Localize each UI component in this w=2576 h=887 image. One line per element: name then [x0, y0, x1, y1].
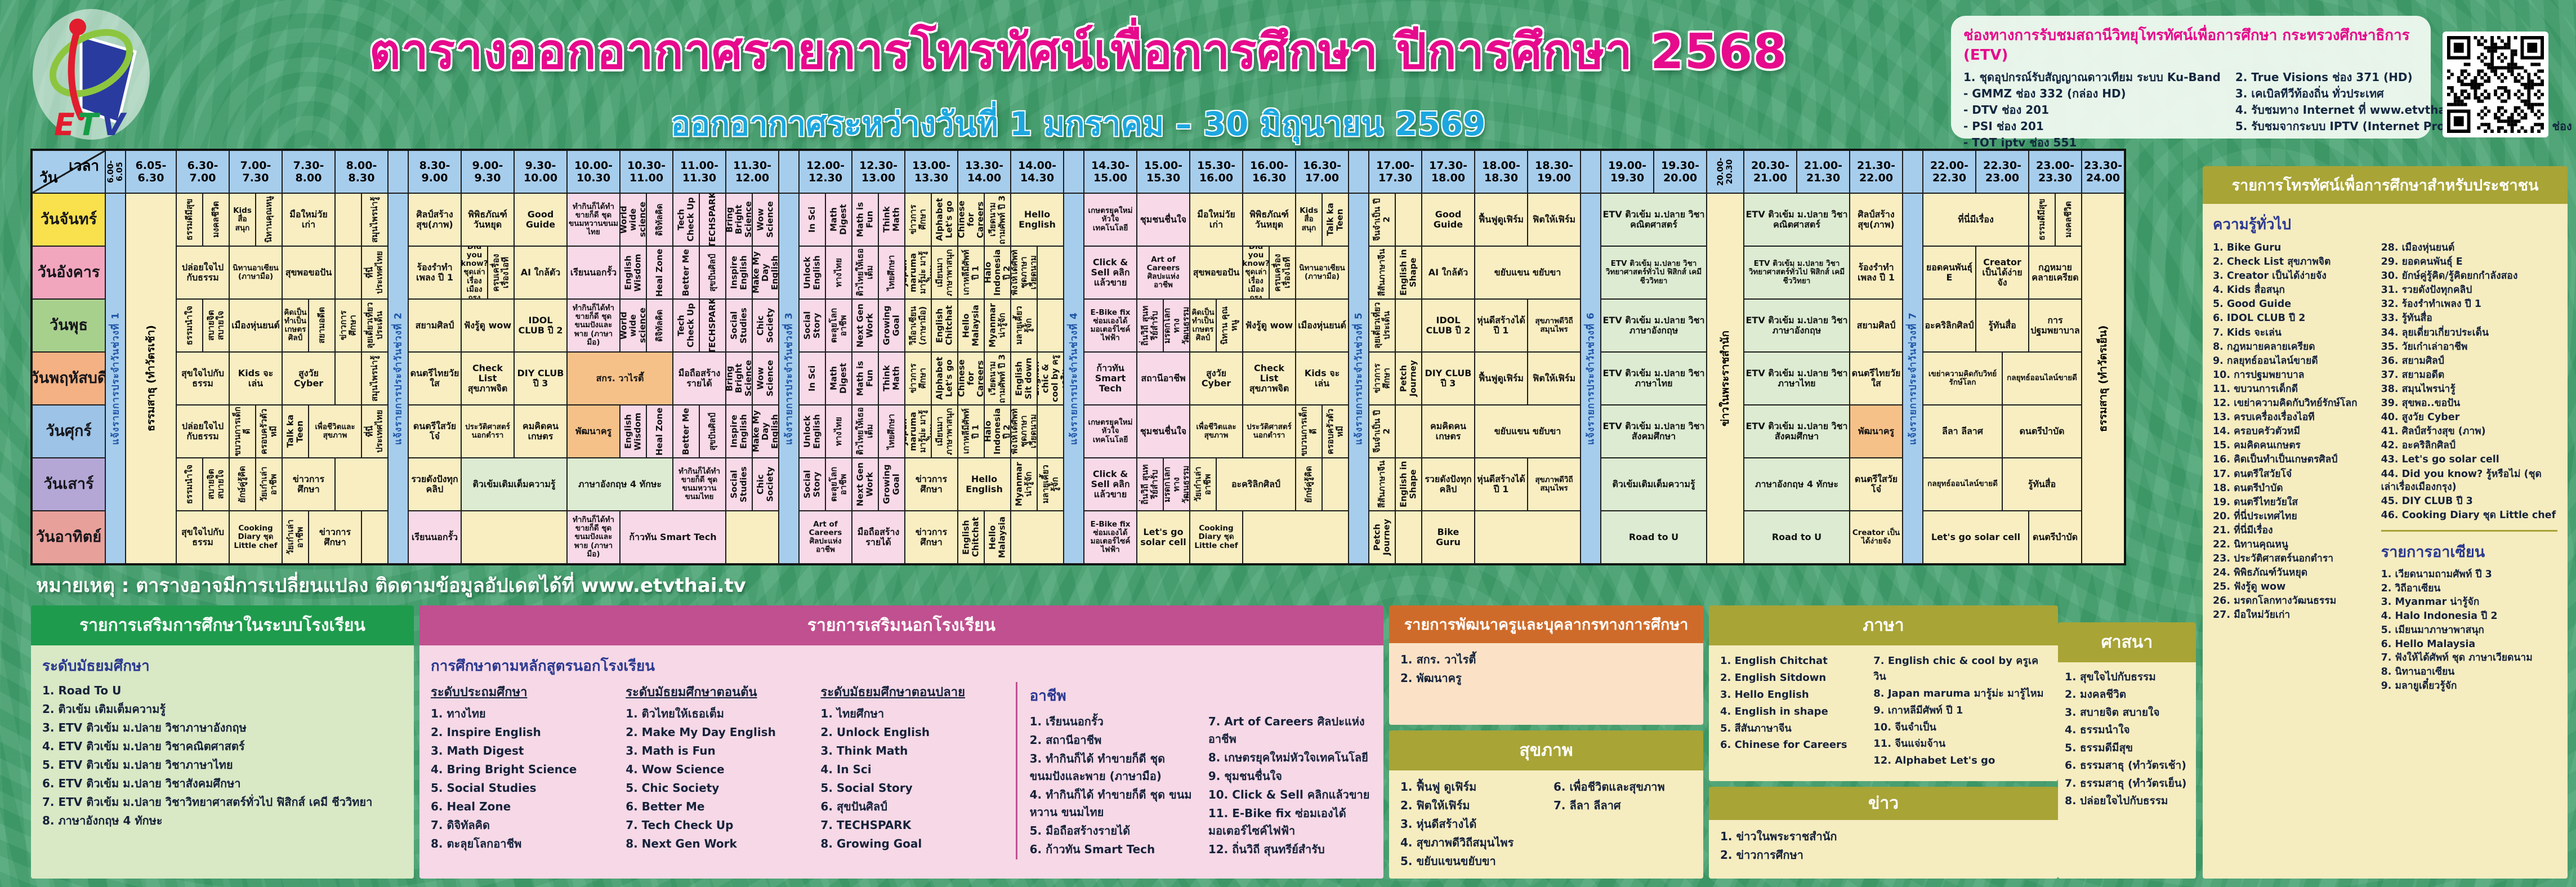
schedule-cell: Myanmar น่ารู้จัก: [984, 299, 1011, 352]
list-item: 1. ฟื้นฟู ดูเฟิร์ม: [1400, 778, 1539, 796]
list-item: 7. TECHSPARK: [820, 817, 1001, 834]
schedule-cell: Kids จะเล่น: [1296, 352, 1349, 405]
list-item: 37. สยามอดีต: [2381, 369, 2557, 382]
schedule-cell: ภาษาอังกฤษ 4 ทักษะ: [1744, 458, 1850, 511]
schedule-cell: เกษตรยุคใหม่ หัวใจเทคโนโลยี: [1084, 405, 1137, 458]
schedule-cell: Hello Malaysia: [984, 511, 1011, 564]
list-item: 24. พิพิธภัณฑ์วันหยุด: [2213, 567, 2367, 580]
schedule-cell: E-Bike fix ซ่อมเองได้ มอเตอร์ไซค์ไฟฟ้า: [1084, 299, 1137, 352]
schedule-cell: ดนตรีใสวัยโจ๋: [1850, 458, 1903, 511]
list-item: 7. Tech Check Up: [626, 817, 806, 834]
schedule-cell: ธรรมนำใจ: [176, 458, 203, 511]
time-header-cell: 6.05-6.30: [126, 150, 176, 193]
schedule-cell: IDOL CLUB ปี 2: [1422, 299, 1475, 352]
time-day-corner: เวลาวัน: [32, 150, 105, 193]
schedule-cell: กลยุทธ์ออนไลน์ขายดี: [2002, 352, 2082, 405]
schedule-cell: สีสันภาษาจีน: [1369, 246, 1395, 299]
panel-language-title: ภาษา: [1709, 605, 2058, 645]
schedule-cell: การปฐมพยาบาล: [2029, 299, 2082, 352]
list-item: 7. ดิจิทัลคิด: [431, 817, 611, 834]
schedule-cell: คิดเป็นทำเป็นเกษตรศิลป์: [1190, 299, 1216, 352]
list-item: 25. ฟังรู้ดู wow: [2213, 581, 2367, 594]
list-item: 44. Did you know? รู้หรือไม่ (ชุด เล่าเร…: [2381, 468, 2557, 494]
all-day-program-column: ธรรมสาธุ (ทำวัตรเย็น): [2082, 193, 2124, 564]
time-header-cell: 15.30-16.00: [1190, 150, 1243, 193]
schedule-cell: AI ใกล้ตัว: [1422, 246, 1475, 299]
time-header-cell: 16.30-17.00: [1296, 150, 1349, 193]
schedule-cell: สมุนไพรน่ารู้: [361, 193, 388, 246]
panel-teacher-development: รายการพัฒนาครูและบุคลากรทางการศึกษา 1. ส…: [1389, 605, 1703, 725]
schedule-cell: Next Gen Work: [852, 299, 878, 352]
schedule-cell: พิพิธภัณฑ์วันหยุด: [461, 193, 514, 246]
time-header-blank: [1581, 150, 1601, 193]
time-header-cell: 19.00-19.30: [1601, 150, 1654, 193]
all-day-program-column: ข่าวในพระราชสำนัก: [1707, 193, 1744, 564]
schedule-cell: ที่นี่มีเรื่อง: [1923, 193, 2029, 246]
schedule-cell: เวียดนามถามศัพท์ ปี 3: [984, 352, 1011, 405]
schedule-cell: เขย่าความคิดกับวิทย์รักษ์โลก: [1923, 352, 2002, 405]
list-item: 8. ตะลุยโลกอาชีพ: [431, 835, 611, 853]
list-item: 35. วัยเก๋าเล่าอาชีพ: [2381, 341, 2557, 354]
schedule-cell: เรียนนอกรั้ว: [567, 246, 620, 299]
qr-code: [2443, 32, 2548, 137]
time-header-cell: 21.30-22.00: [1850, 150, 1903, 193]
in-school-level: ระดับมัธยมศึกษา: [42, 654, 403, 677]
time-header-cell: 11.00-11.30: [673, 150, 726, 193]
schedule-cell: ฟังรู้ดู wow: [1243, 299, 1296, 352]
page-title: ตารางออกอากาศรายการโทรทัศน์เพื่อการศึกษา…: [265, 12, 1892, 90]
schedule-cell: Better Me: [673, 246, 699, 299]
schedule-cell: มือใหม่วัยเก่า: [1190, 193, 1243, 246]
schedule-cell: เมียนมาภาษาพาสนุก: [931, 405, 958, 458]
list-item: 8. Next Gen Work: [626, 835, 806, 853]
schedule-cell: ดิจิทัลคิด: [646, 193, 673, 246]
schedule-cell: Next Gen Work: [852, 458, 878, 511]
list-item: 32. ร้องรำทำเพลง ปี 1: [2381, 298, 2557, 311]
time-header-blank: [1903, 150, 1923, 193]
schedule-cell: ทำกินก็ได้ทำขายก็ดี ชุดขนมหวานขนมไทย: [567, 193, 620, 246]
schedule-cell: ก้าวทัน Smart Tech: [1084, 352, 1137, 405]
list-item: 6. เพื่อชีวิตและสุขภาพ: [1553, 778, 1692, 796]
schedule-cell: IDOL CLUB ปี 2: [514, 299, 567, 352]
list-item: 7. ธรรมสาธุ (ทำวัตรเย็น): [2065, 775, 2189, 792]
schedule-cell: Math Digest: [825, 352, 852, 405]
list-item: 43. Let's go solar cell: [2381, 453, 2557, 466]
list-item: 6. Hello Malaysia: [2381, 638, 2557, 651]
time-header-cell: 10.30-11.00: [620, 150, 673, 193]
list-item: 2. ข่าวการศึกษา: [1720, 846, 2047, 864]
schedule-cell: ขบวนการเด็กดี: [1296, 405, 1322, 458]
list-item: 13. ครบเครื่องเรื่องไอที: [2213, 411, 2367, 424]
schedule-cell: วัยเก๋าเล่าอาชีพ: [1190, 458, 1216, 511]
time-header-cell: 8.00-8.30: [335, 150, 388, 193]
schedule-cell: Hello English: [958, 458, 1011, 511]
schedule-cell: ยอดคนพันธุ์ E: [1923, 246, 1976, 299]
schedule-cell: [1011, 511, 1064, 564]
list-item: 42. อะคริลิกศิลป์: [2381, 439, 2557, 452]
schedule-cell: สุขใจไปกับธรรม: [176, 511, 229, 564]
day-label: วันเสาร์: [32, 458, 105, 511]
schedule-cell: ทำกินก็ได้ทำขายก็ดี ชุดขนมปังและพาย (ภาษ…: [567, 511, 620, 564]
schedule-cell: Halo Indonesia ปี 2: [984, 405, 1011, 458]
schedule-cell: Talk ka Teen: [282, 405, 309, 458]
list-item: 9. มลายูเดี๋ยวรู้จัก: [2381, 680, 2557, 693]
list-item: 2. Check List สุขภาพจิต: [2213, 256, 2367, 269]
list-item: 4. In Sci: [820, 761, 1001, 778]
broadcast-schedule-table: เวลาวัน6.00-6.056.05-6.306.30-7.007.00-7…: [30, 149, 2126, 565]
schedule-cell: ข่าวการศึกษา: [309, 511, 361, 564]
schedule-cell: [335, 246, 361, 299]
list-item: 8. Japan maruma มารู้ม่ะ มารู้ไหม: [1873, 686, 2047, 702]
schedule-cell: มลายูเคี้ยวรู้จัก: [1037, 458, 1064, 511]
schedule-note: หมายเหตุ : ตารางอาจมีการเปลี่ยนแปลง ติดต…: [36, 570, 746, 600]
schedule-cell: English Chitchat: [931, 299, 958, 352]
schedule-cell: Japan maruma มารู้ม่ะ มารู้ไหม: [905, 405, 931, 458]
svg-text:V: V: [101, 107, 127, 142]
channel-line: - DTV ช่อง 201: [1963, 102, 2221, 118]
schedule-cell: [1395, 299, 1422, 352]
schedule-cell: Hello Malaysia: [958, 299, 984, 352]
list-item: 5. เมียนมาภาษาพาสนุก: [2381, 624, 2557, 637]
time-header-cell: 6.30-7.00: [176, 150, 229, 193]
schedule-cell: ฟังให้ได้ศัพท์ ชุดภาษาเวียดนาม: [1011, 246, 1037, 299]
list-item: 4. Bring Bright Science: [431, 761, 611, 778]
list-item: 3. Creator เป็นได้ง่ายจัง: [2213, 270, 2367, 283]
time-header-blank: [779, 150, 799, 193]
all-day-program-column: ธรรมสาธุ (ทำวัตรเช้า): [126, 193, 176, 564]
schedule-cell: Social Studies: [726, 458, 752, 511]
schedule-cell: [1395, 193, 1422, 246]
list-item: 6. IDOL CLUB ปี 2: [2213, 312, 2367, 325]
list-item: 5. Social Studies: [431, 779, 611, 797]
schedule-cell: ข่าวการศึกษา: [1369, 352, 1395, 405]
schedule-cell: ดนตรีบำบัด: [2029, 511, 2082, 564]
schedule-cell: ก้าวทัน Smart Tech: [620, 511, 726, 564]
list-item: 1. ไทยศึกษา: [820, 705, 1001, 723]
schedule-cell: ที่นี่ประเทศไทย: [361, 246, 388, 299]
schedule-cell: Bring Bright Science: [726, 352, 752, 405]
schedule-cell: เมืองหุ่นยนต์: [229, 299, 282, 352]
schedule-cell: มงคลชีวิต: [2055, 193, 2082, 246]
time-header-cell: 17.30-18.00: [1422, 150, 1475, 193]
list-item: 1. ข่าวในพระราชสำนัก: [1720, 828, 2047, 845]
time-header-cell: 7.00-7.30: [229, 150, 282, 193]
level-name: ระดับมัธยมศึกษาตอนต้น: [626, 682, 806, 702]
channel-line: 1. ชุดอุปกรณ์รับสัญญาณดาวเทียม ระบบ Ku-B…: [1963, 69, 2221, 86]
schedule-cell: Kids จะเล่น: [229, 352, 282, 405]
list-item: 8. Growing Goal: [820, 835, 1001, 853]
schedule-cell: ETV ติวเข้ม ม.ปลาย วิชาภาษาไทย: [1744, 352, 1850, 405]
day-label: วันพฤหัสบดี: [32, 352, 105, 405]
schedule-cell: [1395, 405, 1422, 458]
schedule-cell: ตะลุยโลกอาชีพ: [825, 299, 852, 352]
list-item: 2. Unlock English: [820, 724, 1001, 741]
schedule-cell: ข่าวการศึกษา: [905, 511, 958, 564]
public-subtitle: ความรู้ทั่วไป: [2213, 213, 2557, 236]
day-label: วันจันทร์: [32, 193, 105, 246]
schedule-cell: Chic Society: [752, 299, 779, 352]
list-item: 1. Bike Guru: [2213, 242, 2367, 255]
schedule-cell: Did you know? ชุดเล่าเรื่องเมืองกรุง: [461, 246, 488, 299]
schedule-cell: ข่าวการศึกษา: [905, 193, 931, 246]
schedule-cell: ศิลป์สร้างสุข(ภาพ): [1850, 193, 1903, 246]
list-item: 2. วิถีอาเซียน: [2381, 582, 2557, 595]
time-header-cell: 12.00-12.30: [799, 150, 852, 193]
list-item: 2. สถานีอาชีพ: [1030, 732, 1194, 749]
schedule-cell: English Wisdom: [620, 405, 646, 458]
schedule-cell: Good Guide: [514, 193, 567, 246]
list-item: 2. พัฒนาครู: [1400, 670, 1692, 687]
schedule-cell: Social Studies: [726, 299, 752, 352]
schedule-cell: รู้ทันสื่อ: [1976, 299, 2029, 352]
schedule-cell: ฟังรู้ดู wow: [461, 299, 514, 352]
channel-line: - GMMZ ช่อง 332 (กล่อง HD): [1963, 86, 2221, 102]
schedule-cell: สูงวัย Cyber: [1190, 352, 1243, 405]
schedule-cell: สยามอดีต: [309, 299, 335, 352]
schedule-cell: เมืองหุ่นยนต์: [1296, 299, 1349, 352]
schedule-cell: DIY CLUB ปี 3: [1422, 352, 1475, 405]
list-item: 8. เกษตรยุคใหม่หัวใจเทคโนโลยี: [1208, 749, 1372, 766]
schedule-cell: สบายจิต สบายใจ: [203, 299, 229, 352]
schedule-cell: มงคลชีวิต: [203, 193, 229, 246]
list-item: 3. Hello English: [1720, 687, 1859, 703]
list-item: 15. คมคิดคนเกษตร: [2213, 439, 2367, 452]
schedule-cell: Petch Journey: [1369, 511, 1395, 564]
schedule-cell: ลุยเดี่ยวเที่ยวประเด็น: [361, 299, 388, 352]
list-item: 5. สีสันภาษาจีน: [1720, 721, 1859, 737]
schedule-cell: [335, 458, 388, 511]
career-title: อาชีพ: [1030, 684, 1372, 707]
list-item: 6. ก้าวทัน Smart Tech: [1030, 841, 1194, 858]
list-item: 8. ภาษาอังกฤษ 4 ทักษะ: [42, 812, 403, 830]
schedule-cell: เมียนมาภาษาพาสนุก: [931, 246, 958, 299]
list-item: 10. Click & Sell คลิกแล้วขาย: [1208, 786, 1372, 804]
schedule-cell: นิทาน คุณหนู: [1216, 299, 1243, 352]
schedule-cell: Alphabet Let's go: [931, 193, 958, 246]
list-item: 36. สยามศิลป์: [2381, 355, 2557, 368]
schedule-cell: Wow Science: [752, 193, 779, 246]
schedule-cell: มือถือสร้างรายได้: [673, 352, 726, 405]
schedule-cell: Make My Day English: [752, 405, 779, 458]
schedule-cell: English chic & cool by ครูเควิน: [1037, 352, 1064, 405]
schedule-cell: [361, 511, 388, 564]
schedule-cell: อะคริลิกศิลป์: [1216, 458, 1296, 511]
schedule-cell: เกาหลีมีศัพท์ ปี 1: [958, 405, 984, 458]
panel-in-school: รายการเสริมการศึกษาในระบบโรงเรียน ระดับม…: [31, 605, 414, 879]
schedule-cell: English Wisdom: [620, 246, 646, 299]
schedule-cell: สุขภาพดีวิถีสมุนไพร: [1528, 299, 1581, 352]
day-label: วันอังคาร: [32, 246, 105, 299]
list-item: 4. Kids สื่อสนุก: [2213, 284, 2367, 297]
schedule-cell: ประวัติศาสตร์นอกตำรา: [1243, 405, 1296, 458]
schedule-cell: Click & Sell คลิกแล้วขาย: [1084, 458, 1137, 511]
time-header-cell: 22.00-22.30: [1923, 150, 1976, 193]
list-item: 3. Think Math: [820, 742, 1001, 760]
list-item: 20. ที่นี่ประเทศไทย: [2213, 510, 2367, 523]
etv-logo: E T V: [29, 7, 153, 142]
schedule-cell: ขยับแขน ขยับขา: [1475, 405, 1581, 458]
schedule-cell: Road to U: [1744, 511, 1850, 564]
schedule-cell: ครบเครื่องเรื่องไอที: [1269, 246, 1296, 299]
schedule-cell: ติวเข้มเติมเต็มความรู้: [1601, 458, 1707, 511]
schedule-cell: [1037, 299, 1064, 352]
schedule-cell: ดนตรีไทยวัยใส: [1850, 352, 1903, 405]
schedule-cell: สกร. วาไรตี้: [567, 352, 673, 405]
list-item: 2. ฟิตให้เฟิร์ม: [1400, 797, 1539, 814]
schedule-cell: ฟิตให้เฟิร์ม: [1528, 352, 1581, 405]
list-item: 16. คิดเป็นทำเป็นเกษตรศิลป์: [2213, 453, 2367, 466]
list-item: 1. ติวไทยให้เธอเต็ม: [626, 705, 806, 723]
schedule-cell: สุขปันศิลป์: [699, 246, 726, 299]
schedule-cell: ตะลุยโลกอาชีพ: [825, 458, 852, 511]
schedule-cell: สถานีอาชีพ: [1137, 352, 1190, 405]
schedule-cell: จีนจำเป็น ปี 2: [1369, 193, 1395, 246]
schedule-cell: ข่าวการศึกษา: [905, 458, 958, 511]
list-item: 6. ETV ติวเข้ม ม.ปลาย วิชาสังคมศึกษา: [42, 775, 403, 792]
schedule-cell: ศิลป์สร้างสุข(ภาพ): [408, 193, 461, 246]
list-item: 1. Road To U: [42, 682, 403, 699]
time-header-blank: [388, 150, 408, 193]
list-item: 45. DIY CLUB ปี 3: [2381, 495, 2557, 508]
list-item: 10. การปฐมพยาบาล: [2213, 369, 2367, 382]
divider: [2381, 530, 2557, 532]
schedule-cell: World wide science: [620, 193, 646, 246]
schedule-cell: ฟื้นฟูดูเฟิร์ม: [1475, 193, 1528, 246]
schedule-cell: [726, 511, 779, 564]
list-item: 26. มรดกโลกทางวัฒนธรรม: [2213, 595, 2367, 608]
schedule-cell: Make My Day English: [752, 246, 779, 299]
list-item: 4. ทำกินก็ได้ ทำขายก็ดี ชุด ขนมหวาน ขนมไ…: [1030, 786, 1194, 821]
schedule-cell: English Chitchat: [958, 511, 984, 564]
list-item: 40. สูงวัย Cyber: [2381, 411, 2557, 424]
time-header-cell: 12.30-13.00: [852, 150, 905, 193]
schedule-cell: ชุมชนชื่นใจ: [1137, 405, 1190, 458]
panel-religion-title: ศาสนา: [2058, 622, 2196, 662]
page-subtitle: ออกอากาศระหว่างวันที่ 1 มกราคม – 30 มิถุ…: [265, 97, 1892, 150]
schedule-cell: พัฒนาครู: [1850, 405, 1903, 458]
schedule-cell: ปล่อยใจไปกับธรรม: [176, 246, 229, 299]
schedule-cell: Heal Zone: [646, 246, 673, 299]
time-header-cell: 20.00-20.30: [1707, 150, 1744, 193]
day-label: วันศุกร์: [32, 405, 105, 458]
schedule-cell: Cooking Diary ชุด Little chef: [229, 511, 282, 564]
schedule-cell: สูงวัย Cyber: [282, 352, 335, 405]
list-item: 7. ฟังให้ได้ศัพท์ ชุด ภาษาเวียดนาม: [2381, 652, 2557, 665]
schedule-cell: เวียดนามถามศัพท์ ปี 3: [984, 193, 1011, 246]
schedule-cell: ข่าวการศึกษา: [282, 458, 335, 511]
schedule-cell: TECHSPARK: [699, 299, 726, 352]
schedule-cell: มรดกโลกทางวัฒนธรรม: [1163, 458, 1190, 511]
list-item: 33. รู้ทันสื่อ: [2381, 312, 2557, 325]
day-label: วันอาทิตย์: [32, 511, 105, 564]
schedule-cell: ลีลา ลีลาศ: [1923, 405, 2002, 458]
schedule-cell: ETV ติวเข้ม ม.ปลาย วิชาวิทยาศาสตร์ทั่วไป…: [1744, 246, 1850, 299]
list-item: 1. ทางไทย: [431, 705, 611, 723]
schedule-cell: Unlock English: [799, 405, 825, 458]
time-header-cell: 13.00-13.30: [905, 150, 958, 193]
list-item: 2. ติวเข้ม เติมเต็มความรู้: [42, 701, 403, 718]
schedule-cell: English Sit down: [1011, 352, 1037, 405]
list-item: 19. ดนตรีไทยวัยใส: [2213, 496, 2367, 509]
schedule-cell: Halo Indonesia ปี 2: [984, 246, 1011, 299]
schedule-cell: วิถีอาเซียน (ภาษามือ): [905, 299, 931, 352]
list-item: 31. รวยดังปังทุกคลิป: [2381, 284, 2557, 297]
list-item: 9. เกาหลีมีศัพท์ ปี 1: [1873, 703, 2047, 719]
list-item: 30. ยักษ์คู่รู้คิด/รู้คิดยกกำลังสอง: [2381, 270, 2557, 283]
time-header-cell: 19.30-20.00: [1654, 150, 1707, 193]
schedule-cell: ภาษาอังกฤษ 4 ทักษะ: [567, 458, 673, 511]
time-header-cell: 14.00-14.30: [1011, 150, 1064, 193]
schedule-cell: Social Story: [799, 458, 825, 511]
list-item: 6. ธรรมสาธุ (ทำวัตรเช้า): [2065, 757, 2189, 774]
schedule-cell: สีสันภาษาจีน: [1369, 458, 1395, 511]
schedule-cell: Math is Fun: [852, 193, 878, 246]
schedule-cell: Inspire English: [726, 246, 752, 299]
schedule-cell: Heal Zone: [646, 405, 673, 458]
schedule-cell: ETV ติวเข้ม ม.ปลาย วิชาภาษาไทย: [1601, 352, 1707, 405]
schedule-cell: Chinese for Careers: [958, 352, 984, 405]
schedule-cell: คมคิดคนเกษตร: [1422, 405, 1475, 458]
schedule-cell: Inspire English: [726, 405, 752, 458]
asean-title: รายการอาเซียน: [2381, 540, 2557, 564]
schedule-cell: วัยเก๋าเล่าอาชีพ: [282, 511, 309, 564]
list-item: 41. ศิลป์สร้างสุข (ภาพ): [2381, 425, 2557, 438]
corner-day-label: วัน: [39, 166, 57, 189]
schedule-cell: สุขพอขอปัน: [282, 246, 335, 299]
time-header-cell: 23.30-24.00: [2082, 150, 2124, 193]
schedule-cell: ขยับแขน ขยับขา: [1475, 246, 1581, 299]
schedule-cell: สมุนไพรน่ารู้: [361, 352, 388, 405]
svg-text:T: T: [78, 107, 101, 142]
list-item: 7. Art of Careers ศิลปะแห่งอาชีพ: [1208, 713, 1372, 748]
schedule-cell: Bike Guru: [1422, 511, 1475, 564]
list-item: 12. เขย่าความคิดกับวิทย์รักษ์โลก: [2213, 397, 2367, 410]
list-item: 7. ETV ติวเข้ม ม.ปลาย วิชาวิทยาศาสตร์ทั่…: [42, 794, 403, 811]
level-name: ระดับมัธยมศึกษาตอนปลาย: [820, 682, 1001, 702]
schedule-cell: ดนตรีใสวัยโจ๋: [408, 405, 461, 458]
segment-divider-column: แจ้งรายการประจำวันช่วงที่ 5: [1349, 193, 1369, 564]
schedule-cell: ครอบครัวตัวหมี: [1322, 405, 1349, 458]
svg-text:E: E: [54, 107, 75, 142]
curriculum-level-column: ระดับประถมศึกษา1. ทางไทย2. Inspire Engli…: [431, 682, 611, 854]
segment-divider-column: แจ้งรายการประจำวันช่วงที่ 4: [1064, 193, 1084, 564]
schedule-cell: หุ่นดีสร้างได้ ปี 1: [1475, 299, 1528, 352]
schedule-cell: ดนตรีบำบัด: [2002, 405, 2082, 458]
list-item: 17. ดนตรีใสวัยโจ๋: [2213, 468, 2367, 481]
list-item: 6. Chinese for Careers: [1720, 737, 1859, 753]
level-name: ระดับประถมศึกษา: [431, 682, 611, 702]
list-item: 5. Social Story: [820, 779, 1001, 797]
list-item: 5. ขยับแขนขยับขา: [1400, 853, 1539, 870]
time-header-cell: 6.00-6.05: [105, 150, 126, 193]
schedule-cell: ดนตรีไทยวัยใส: [408, 352, 461, 405]
list-item: 4. ธรรมนำใจ: [2065, 722, 2189, 738]
schedule-cell: Click & Sell คลิกแล้วขาย: [1084, 246, 1137, 299]
time-header-cell: 13.30-14.00: [958, 150, 1011, 193]
schedule-cell: ETV ติวเข้ม ม.ปลาย วิชาวิทยาศาสตร์ทั่วไป…: [1601, 246, 1707, 299]
schedule-cell: Tech Check Up: [673, 299, 699, 352]
schedule-cell: เพื่อชีวิตและสุขภาพ: [1190, 405, 1243, 458]
schedule-cell: สุขภาพดีวิถีสมุนไพร: [1528, 458, 1581, 511]
schedule-cell: ชุมชนชื่นใจ: [1137, 193, 1190, 246]
schedule-cell: [1037, 405, 1064, 458]
channels-col1: 1. ชุดอุปกรณ์รับสัญญาณดาวเทียม ระบบ Ku-B…: [1963, 69, 2221, 151]
schedule-cell: ทำกินก็ได้ทำขายก็ดี ชุดขนมปังและพาย (ภาษ…: [567, 299, 620, 352]
channel-line: - PSI ช่อง 201: [1963, 118, 2221, 135]
schedule-cell: Road to U: [1601, 511, 1707, 564]
out-of-school-curriculum-title: การศึกษาตามหลักสูตรนอกโรงเรียน: [431, 654, 1372, 677]
list-item: 18. ดนตรีบำบัด: [2213, 482, 2367, 495]
